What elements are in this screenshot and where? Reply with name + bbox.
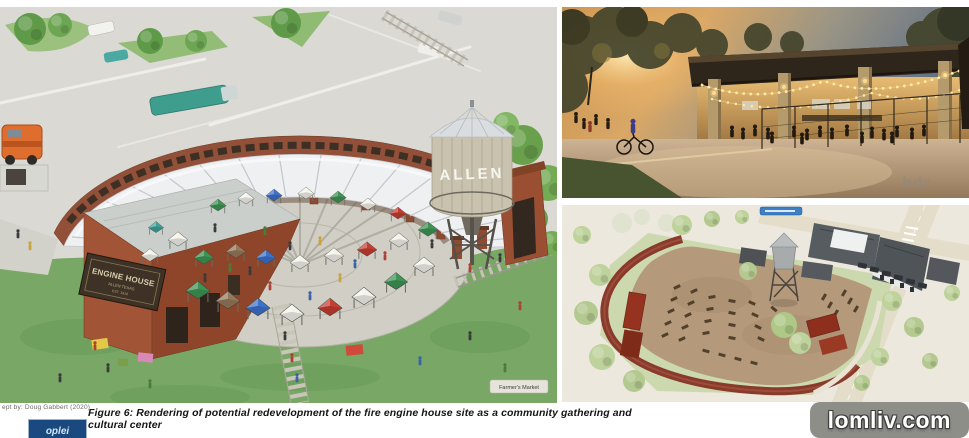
image-credit: ept by: Doug Gabbert (2020) — [2, 404, 90, 411]
figure-page: ENGINE HOUSE ALLEN TEXAS EST. 1910 — [0, 0, 969, 438]
site-plan-aerial-svg — [562, 205, 969, 402]
site-plan-aerial-image — [562, 205, 969, 402]
engine-house-rendering-image: ENGINE HOUSE ALLEN TEXAS EST. 1910 — [0, 7, 557, 403]
water-tower-label: ALLEN — [439, 165, 505, 184]
pavilion-evening-svg: bdr — [562, 7, 969, 198]
site-watermark: lomliv.com — [810, 402, 969, 438]
figure-caption: Figure 6: Rendering of potential redevel… — [88, 407, 648, 431]
photo-watermark: bdr — [902, 175, 931, 192]
farmers-market-label-text: Farmer's Market — [499, 385, 539, 391]
pavilion-evening-image: bdr — [562, 7, 969, 198]
firm-logo: oplei — [28, 419, 87, 438]
viewport-label — [760, 207, 802, 215]
farmers-market-label: Farmer's Market — [490, 380, 548, 393]
engine-house-rendering-svg: ENGINE HOUSE ALLEN TEXAS EST. 1910 — [0, 7, 557, 403]
